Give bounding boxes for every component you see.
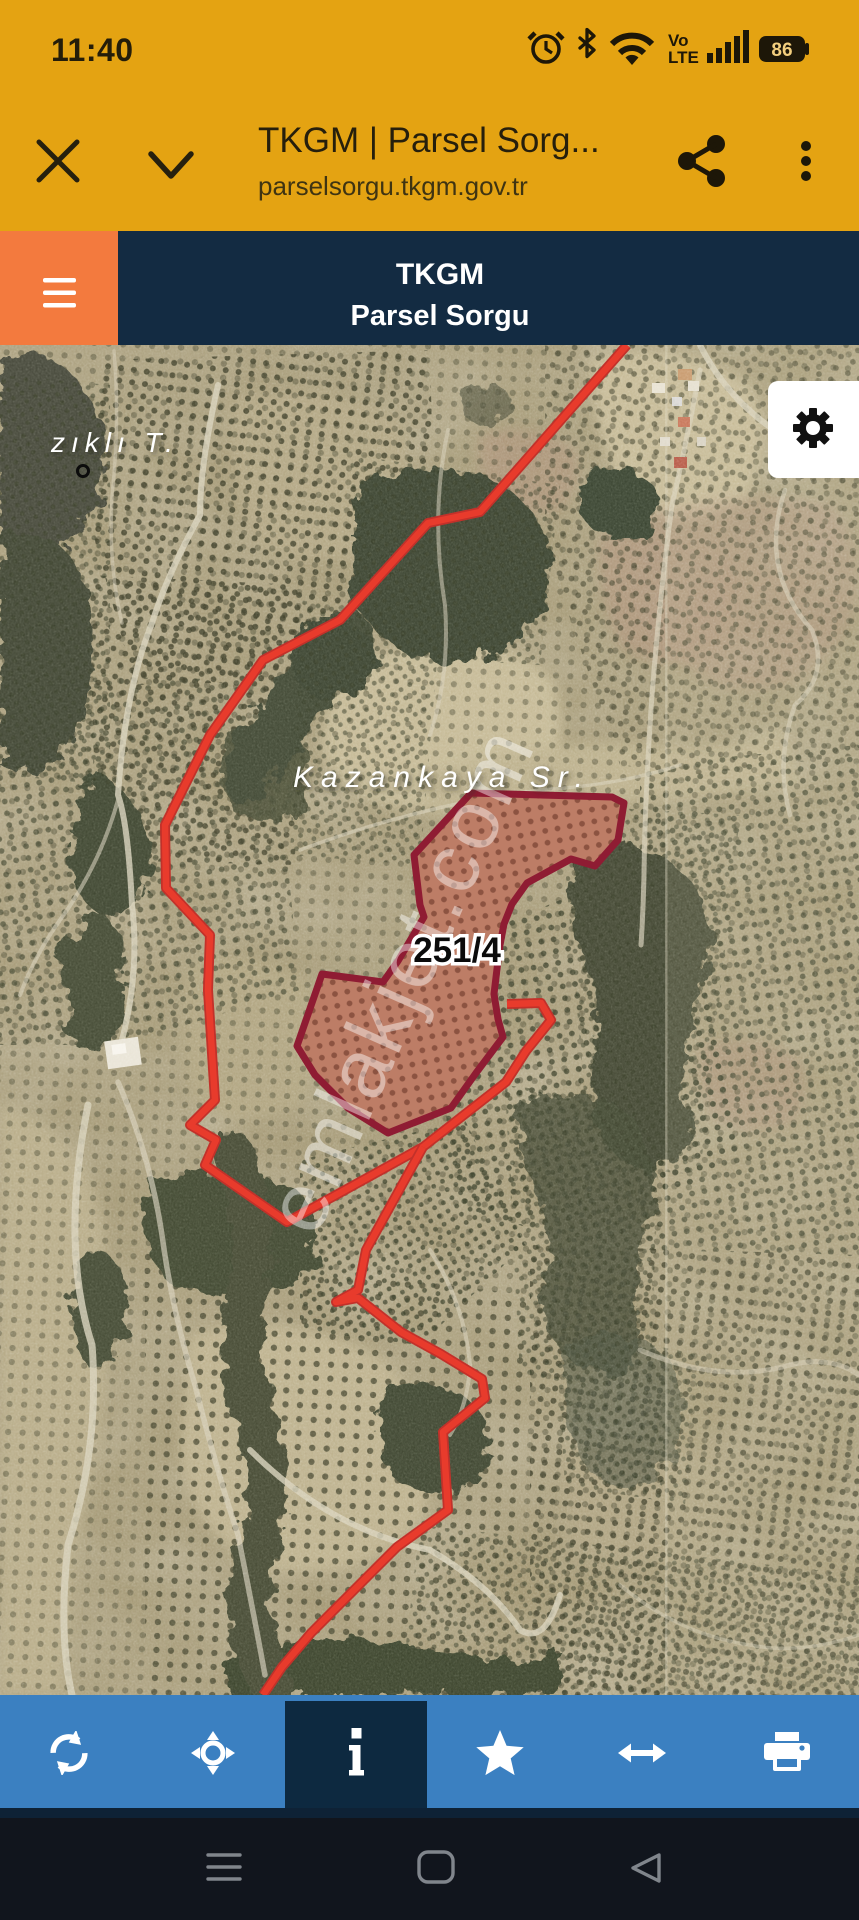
svg-text:86: 86 [771, 40, 792, 61]
svg-text:Kazankaya Sr.: Kazankaya Sr. [293, 761, 591, 794]
svg-text:251/4: 251/4 [413, 931, 501, 970]
svg-text:LTE: LTE [668, 48, 699, 67]
svg-text:zıklı T.: zıklı T. [50, 427, 179, 458]
